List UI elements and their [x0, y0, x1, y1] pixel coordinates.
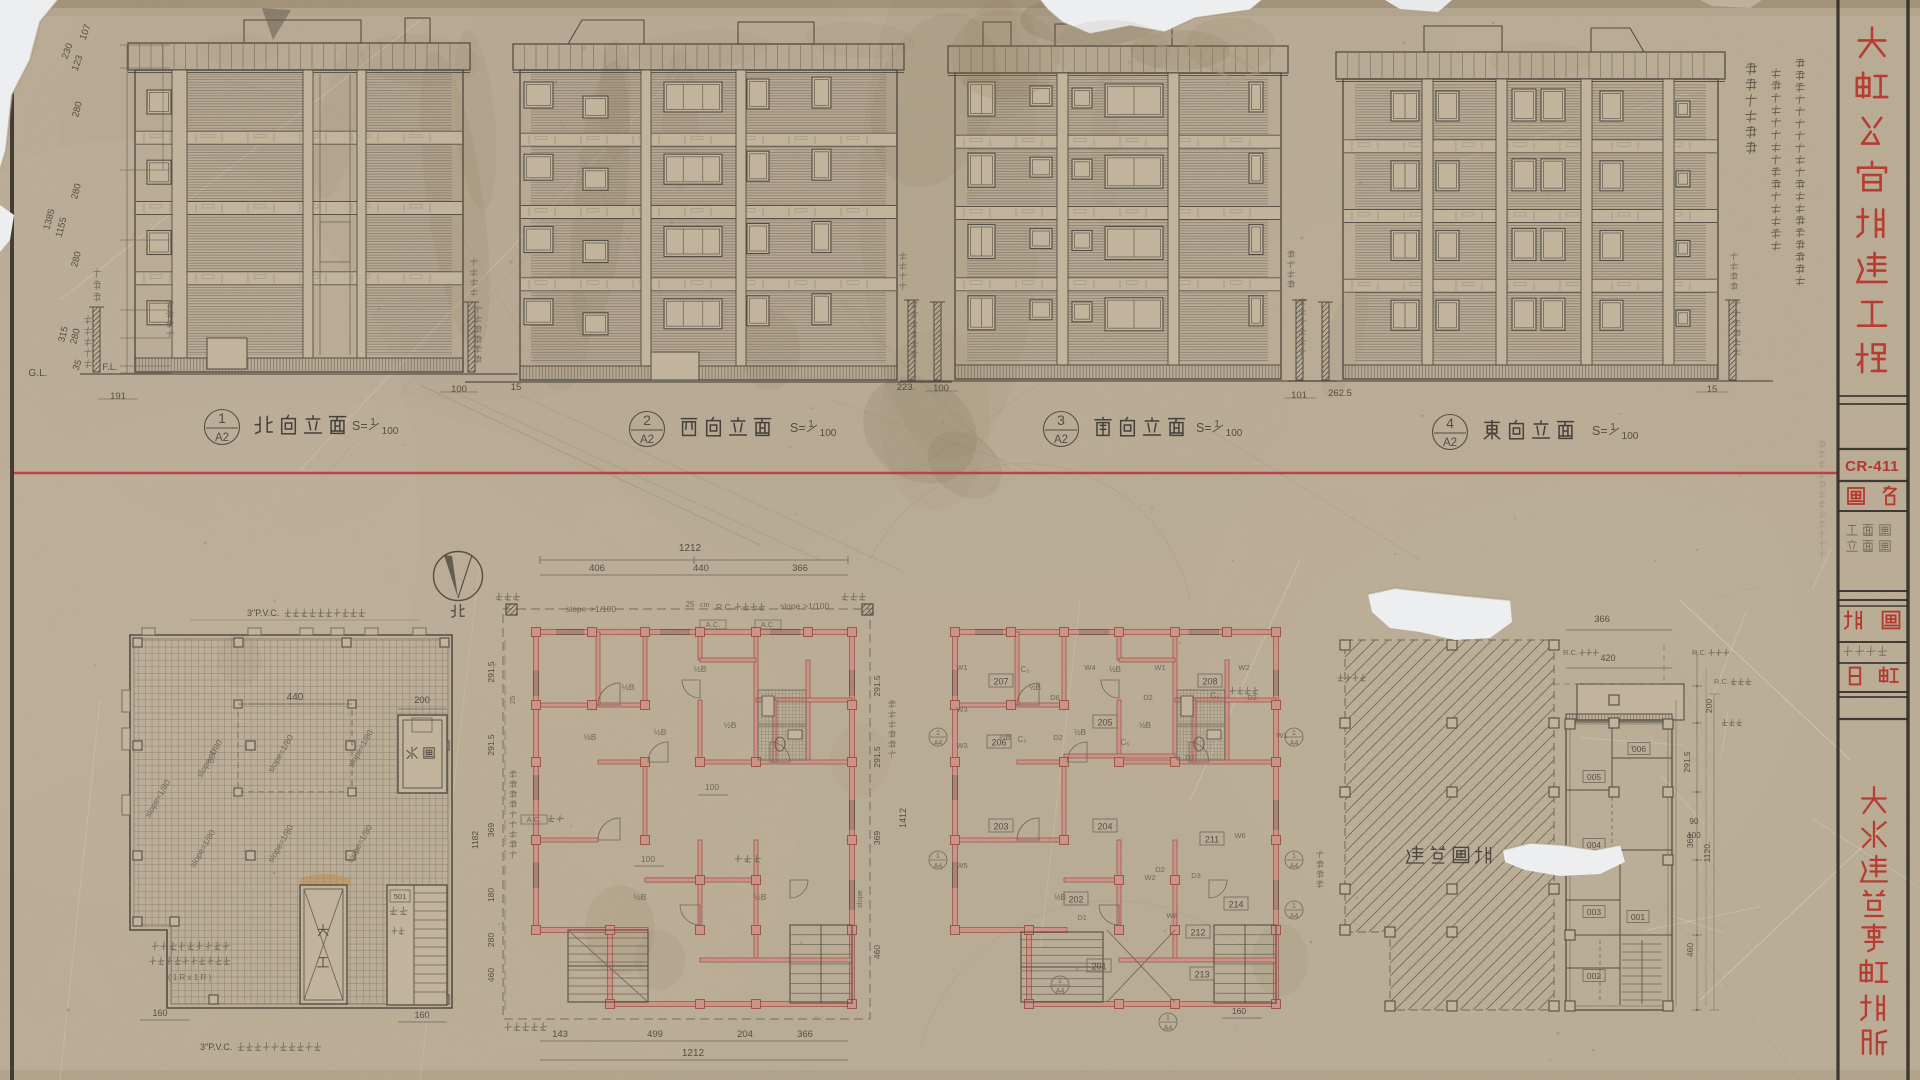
svg-text:D2: D2 — [1155, 865, 1165, 874]
svg-text:A4: A4 — [934, 740, 943, 747]
svg-text:R.C.: R.C. — [1714, 677, 1729, 686]
svg-text:D2: D2 — [1143, 693, 1153, 702]
svg-text:499: 499 — [647, 1029, 663, 1040]
svg-text:101: 101 — [1291, 390, 1307, 401]
svg-text:002: 002 — [1587, 971, 1601, 981]
svg-text:C₅: C₅ — [1121, 738, 1130, 747]
svg-text:slope: slope — [566, 604, 587, 614]
svg-text:1: 1 — [1214, 419, 1220, 430]
svg-text:½B: ½B — [724, 720, 737, 730]
svg-text:R.C.: R.C. — [1563, 648, 1578, 657]
svg-text:W5: W5 — [956, 861, 967, 870]
svg-text:420: 420 — [1600, 653, 1615, 663]
svg-text:A4: A4 — [1164, 1025, 1173, 1032]
svg-text:1120.: 1120. — [1702, 842, 1712, 863]
svg-text:1: 1 — [1292, 730, 1296, 737]
svg-text:212: 212 — [1190, 928, 1205, 938]
svg-text:369: 369 — [872, 831, 882, 845]
svg-text:25: 25 — [686, 600, 695, 609]
svg-text:001: 001 — [1631, 912, 1645, 922]
svg-text:291.5: 291.5 — [872, 746, 882, 768]
svg-text:C₃: C₃ — [1020, 665, 1029, 674]
svg-text:½B: ½B — [1054, 893, 1066, 902]
svg-text:201: 201 — [1091, 962, 1106, 972]
svg-text:A.C.: A.C. — [706, 620, 721, 629]
svg-text:15: 15 — [511, 382, 522, 393]
svg-text:200: 200 — [414, 695, 430, 706]
svg-text:F.L.: F.L. — [102, 362, 117, 373]
svg-text:369: 369 — [486, 823, 496, 837]
svg-text:291.5: 291.5 — [1682, 751, 1692, 773]
svg-text:D6: D6 — [1050, 693, 1060, 702]
svg-text:A2: A2 — [1054, 434, 1068, 446]
svg-text:366: 366 — [1594, 614, 1610, 625]
svg-text:1182: 1182 — [470, 831, 480, 850]
svg-text:W1: W1 — [1154, 663, 1165, 672]
svg-text:100: 100 — [382, 426, 399, 437]
svg-text:S=: S= — [1592, 424, 1608, 438]
svg-text:R.C.: R.C. — [1692, 648, 1707, 657]
svg-text:½B: ½B — [1074, 728, 1086, 737]
svg-text:½B: ½B — [654, 727, 667, 737]
svg-text:208: 208 — [1202, 677, 1217, 687]
svg-text:A4: A4 — [1056, 988, 1065, 995]
svg-text:204: 204 — [737, 1029, 753, 1040]
svg-text:15: 15 — [1707, 384, 1718, 395]
svg-text:100: 100 — [641, 854, 655, 864]
svg-text:100: 100 — [451, 384, 467, 395]
svg-text:291.5: 291.5 — [486, 661, 496, 683]
svg-text:2: 2 — [643, 412, 651, 428]
svg-text:1412: 1412 — [898, 808, 908, 828]
svg-text:G.L.: G.L. — [29, 368, 48, 379]
svg-text:W3: W3 — [956, 741, 967, 750]
svg-text:1: 1 — [1292, 853, 1296, 860]
svg-text:460: 460 — [486, 968, 496, 982]
svg-text:slope: slope — [855, 890, 864, 908]
svg-text:D3: D3 — [1247, 693, 1257, 702]
svg-text:W6: W6 — [1234, 831, 1245, 840]
svg-text:1: 1 — [1166, 1015, 1170, 1022]
svg-text:202: 202 — [1068, 895, 1083, 905]
svg-text:223.: 223. — [897, 382, 916, 393]
svg-text:D2: D2 — [1053, 733, 1063, 742]
svg-text:>1/100: >1/100 — [803, 601, 830, 611]
svg-text:A.C.: A.C. — [761, 620, 776, 629]
svg-text:214: 214 — [1228, 900, 1243, 910]
svg-text:440: 440 — [693, 563, 709, 574]
svg-text:D1: D1 — [1077, 913, 1087, 922]
svg-text:A4: A4 — [1290, 863, 1299, 870]
svg-text:1: 1 — [218, 410, 226, 426]
svg-text:213: 213 — [1194, 970, 1209, 980]
svg-text:4: 4 — [1446, 415, 1454, 431]
svg-text:A2: A2 — [640, 434, 654, 446]
svg-text:A2: A2 — [1443, 437, 1457, 449]
svg-text:S=: S= — [790, 421, 806, 435]
svg-text:½B: ½B — [1139, 721, 1151, 730]
svg-text:1: 1 — [1058, 978, 1062, 985]
svg-text:291.5: 291.5 — [872, 675, 882, 697]
svg-text:A4: A4 — [1290, 913, 1299, 920]
svg-text:280: 280 — [486, 933, 496, 947]
svg-text:A2: A2 — [215, 432, 229, 444]
svg-text:100: 100 — [705, 782, 719, 792]
svg-text:366: 366 — [792, 563, 808, 574]
svg-text:460: 460 — [1685, 943, 1695, 957]
svg-text:½B: ½B — [999, 733, 1011, 742]
svg-text:W8: W8 — [1166, 911, 1177, 920]
svg-text:3: 3 — [1057, 412, 1065, 428]
svg-text:W4: W4 — [1084, 663, 1095, 672]
svg-text:90: 90 — [1690, 817, 1699, 826]
svg-text:D7: D7 — [1185, 753, 1195, 762]
svg-text:440: 440 — [287, 692, 304, 703]
svg-text:1: 1 — [936, 853, 940, 860]
svg-text:1212: 1212 — [679, 543, 702, 554]
svg-text:143: 143 — [552, 1029, 568, 1040]
svg-text:3"P.V.C.: 3"P.V.C. — [247, 608, 279, 618]
svg-text:W1: W1 — [956, 663, 967, 672]
svg-text:006: 006 — [1632, 744, 1646, 754]
svg-text:160: 160 — [1232, 1006, 1246, 1016]
svg-text:C₄: C₄ — [1210, 691, 1219, 700]
svg-text:160: 160 — [152, 1008, 167, 1018]
svg-text:( 1 R x 1 R ): ( 1 R x 1 R ) — [168, 973, 211, 982]
svg-text:1: 1 — [936, 730, 940, 737]
svg-text:slope: slope — [780, 601, 801, 611]
svg-text:C₂: C₂ — [1018, 735, 1027, 744]
svg-text:A4: A4 — [934, 863, 943, 870]
svg-text:204: 204 — [1097, 822, 1112, 832]
svg-text:100: 100 — [1622, 431, 1639, 442]
svg-text:291.5: 291.5 — [486, 734, 496, 756]
svg-text:½B: ½B — [1109, 665, 1121, 674]
svg-text:A.C.: A.C. — [527, 815, 542, 824]
svg-text:1: 1 — [370, 417, 376, 428]
svg-text:½B: ½B — [634, 892, 647, 902]
svg-text:406: 406 — [589, 563, 605, 574]
svg-text:½B: ½B — [754, 892, 767, 902]
svg-text:CR-411: CR-411 — [1845, 458, 1899, 475]
svg-text:25: 25 — [508, 696, 517, 704]
svg-text:W2: W2 — [1238, 663, 1249, 672]
svg-text:207: 207 — [993, 677, 1008, 687]
svg-text:½B: ½B — [622, 682, 635, 692]
svg-text:180: 180 — [486, 888, 496, 902]
svg-text:005: 005 — [1587, 772, 1601, 782]
svg-text:460: 460 — [872, 945, 882, 959]
svg-text:200: 200 — [1704, 699, 1714, 713]
svg-text:1: 1 — [808, 419, 814, 430]
svg-text:3"P.V.C.: 3"P.V.C. — [200, 1042, 232, 1052]
svg-text:S=: S= — [352, 419, 368, 433]
svg-text:1: 1 — [1292, 903, 1296, 910]
svg-text:1212: 1212 — [682, 1048, 705, 1059]
svg-text:205: 205 — [1097, 718, 1112, 728]
svg-text:>1/100: >1/100 — [590, 604, 617, 614]
svg-text:D3: D3 — [1191, 871, 1201, 880]
svg-text:203: 203 — [993, 822, 1008, 832]
svg-text:½B: ½B — [1029, 683, 1041, 692]
svg-text:100: 100 — [1226, 428, 1243, 439]
svg-text:W3: W3 — [956, 705, 967, 714]
svg-text:191: 191 — [110, 391, 126, 402]
svg-text:501: 501 — [394, 892, 407, 901]
svg-text:A4: A4 — [1290, 740, 1299, 747]
svg-text:W2: W2 — [1144, 873, 1155, 882]
svg-text:S=: S= — [1196, 421, 1212, 435]
svg-text:R.C.: R.C. — [716, 602, 733, 612]
svg-text:100: 100 — [820, 428, 837, 439]
svg-text:003: 003 — [1587, 907, 1601, 917]
svg-text:262.5: 262.5 — [1328, 388, 1352, 399]
svg-text:366: 366 — [797, 1029, 813, 1040]
svg-text:½B: ½B — [694, 664, 707, 674]
svg-text:211: 211 — [1205, 835, 1219, 845]
svg-text:160: 160 — [414, 1010, 429, 1020]
svg-text:½B: ½B — [584, 732, 597, 742]
svg-text:100: 100 — [933, 383, 949, 394]
svg-text:100: 100 — [1687, 831, 1701, 840]
svg-text:cm: cm — [700, 602, 710, 609]
svg-text:1: 1 — [1610, 422, 1616, 433]
